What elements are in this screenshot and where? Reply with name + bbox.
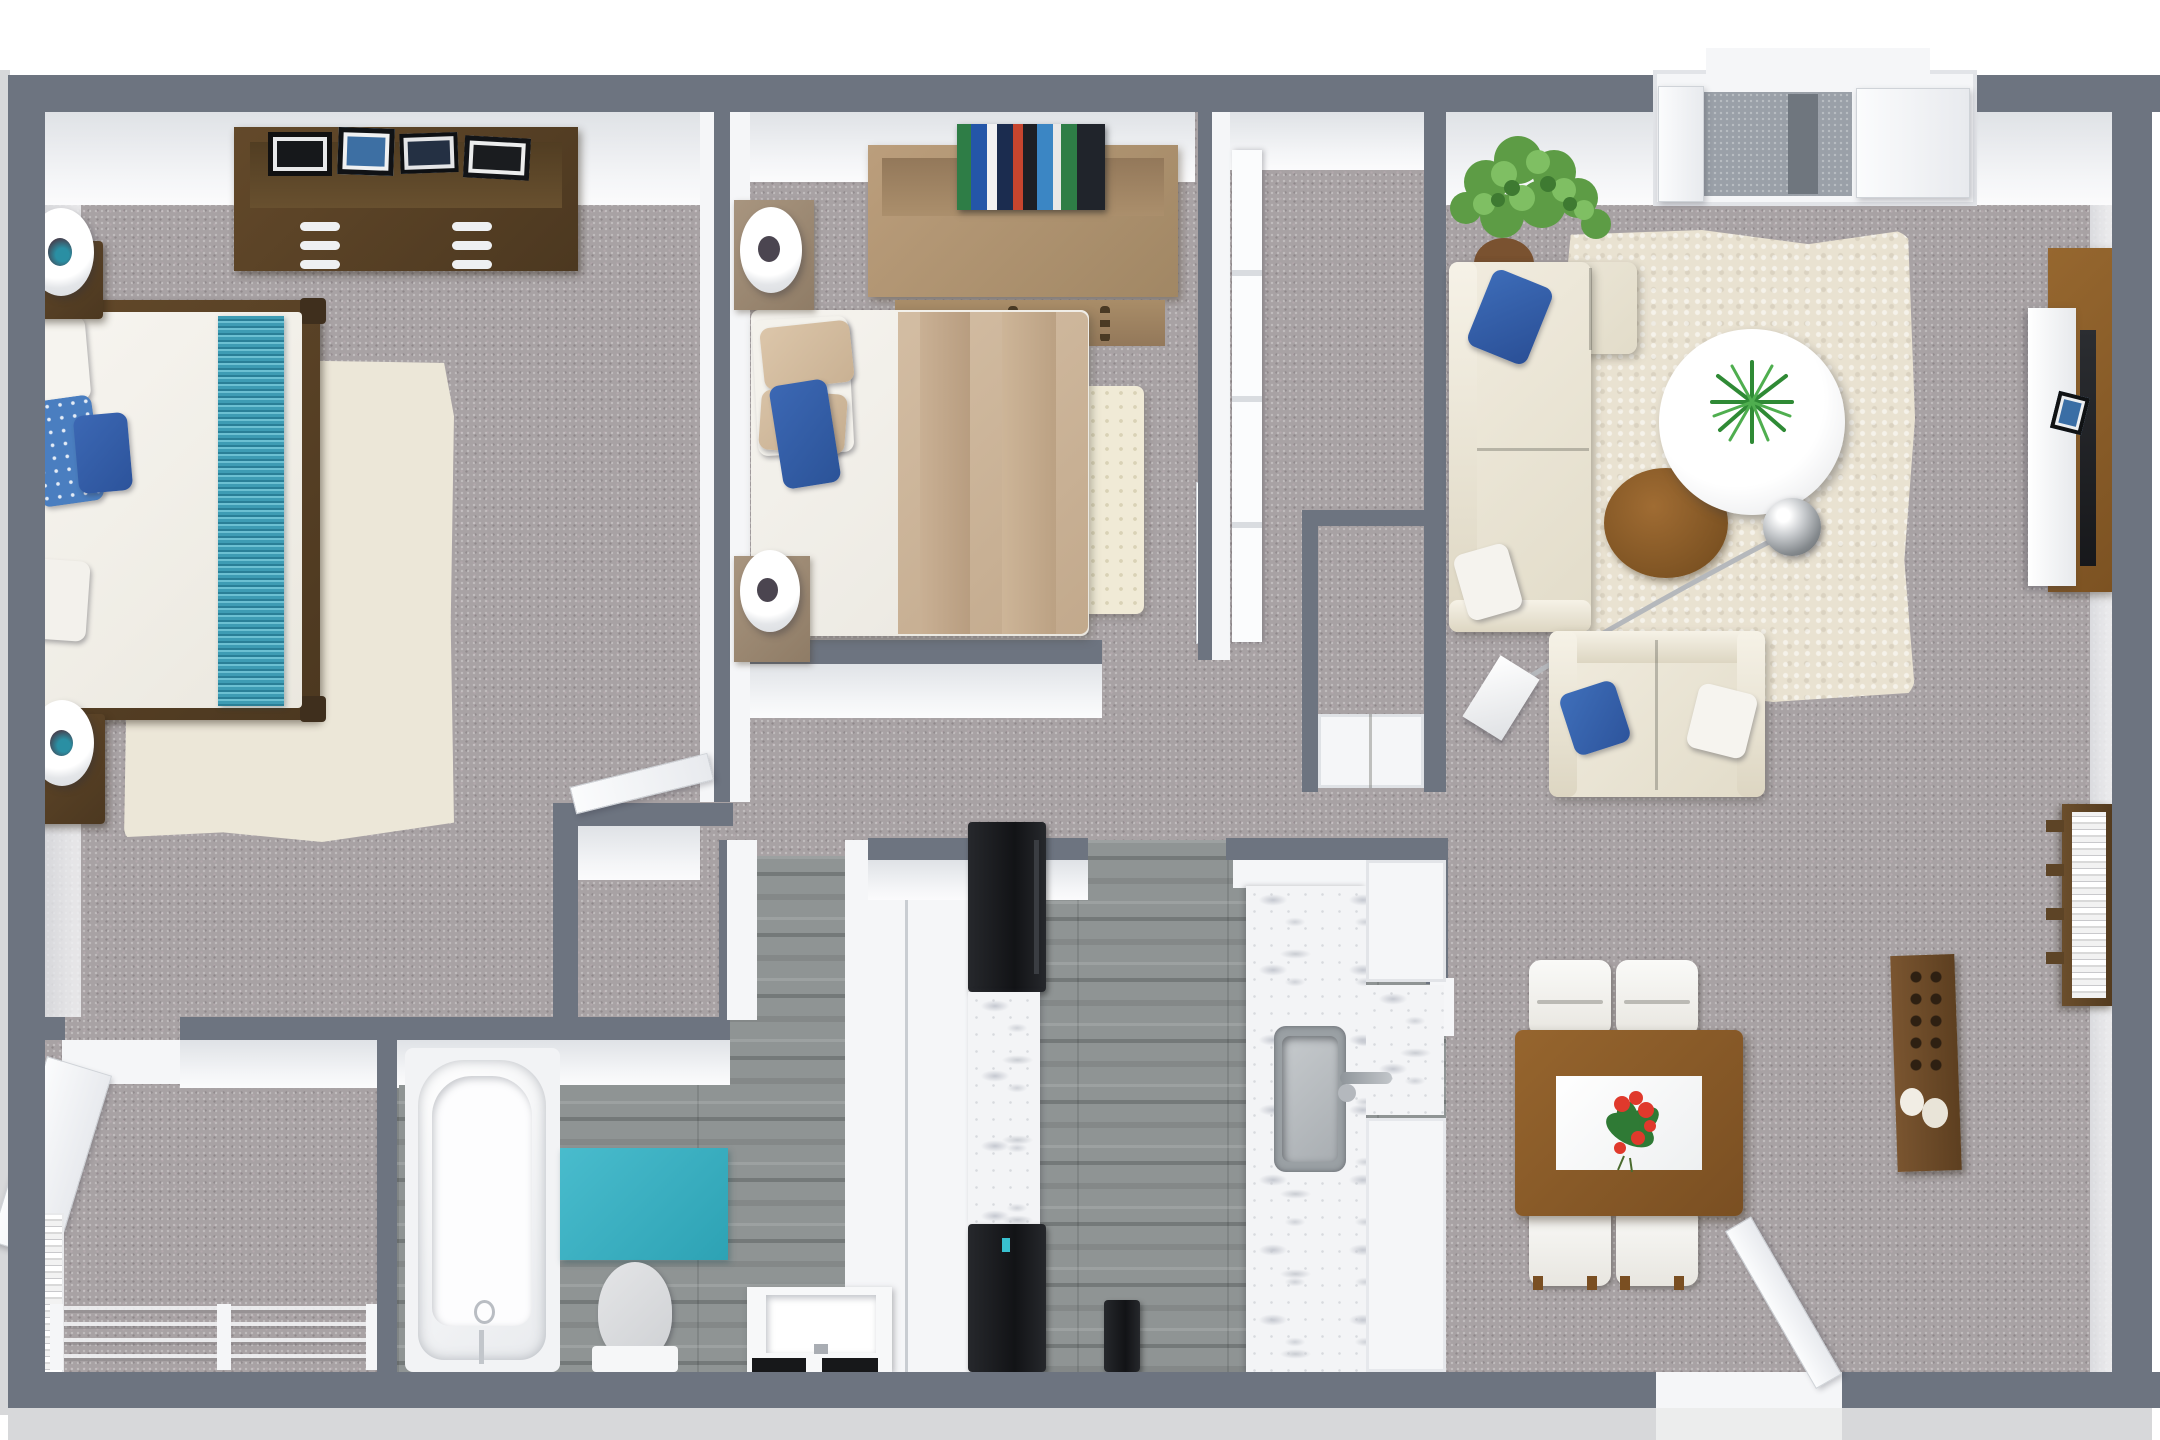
bedroom2-east-wall-face [1212,112,1230,660]
floor-plan [0,0,2160,1440]
back-door-stoop [1656,1408,1842,1440]
kitchen-faucet-base [1338,1084,1356,1102]
chair-tr-seam [1624,1000,1690,1004]
hall-closet-door-seam [1369,714,1372,788]
entry-doormat-stripe [1788,94,1818,194]
kitchen-sink-basin [1282,1036,1338,1162]
closetroom-wall-stub [45,1017,65,1040]
dining-chair-top-right [1616,960,1698,1036]
kitchen-counter-left [968,992,1040,1224]
closetroom-wall-face [180,1040,399,1088]
alcove-wall-left [553,803,578,1017]
dresser-drawer-pull-1 [300,222,340,231]
picture-frame-1 [268,132,332,176]
master-blue-pillow [73,412,134,494]
kitchen-upper-counter [1233,860,1368,888]
outer-wall-top-left [8,75,1653,112]
tv-screen [2080,330,2096,566]
bedroom2-south-wall-face [750,662,1102,718]
master-bed-teal-runner [218,316,284,706]
bath-mat [560,1148,728,1260]
bathtub-basin [432,1076,532,1326]
toilet-tank [592,1346,678,1372]
refrigerator-handle [1034,840,1039,974]
closet-rod-bay-2 [231,1306,366,1368]
sectional-seat-seam-2 [1589,268,1592,350]
ladder-bookshelf-books [2072,812,2106,998]
picture-frame-2 [337,127,395,176]
chair-tl-seam [1537,1000,1603,1004]
closetroom-wall-top [180,1017,399,1040]
outer-wall-right [2112,75,2152,1408]
bathtub-faucet [479,1330,484,1364]
dining-centerpiece-flowers [1580,1072,1690,1182]
entry-door-panel-right [1856,88,1970,198]
vanity-base-left [752,1358,806,1372]
closet-post-1 [50,1304,63,1370]
tv-console [2028,308,2076,586]
closet-post-2 [217,1304,231,1370]
closet2-sliding-door [1232,150,1262,642]
picture-frame-3 [399,132,458,174]
bedroom2-lamp-top-center [758,236,780,262]
bathroom-kitchen-wall-seam [905,840,908,1372]
bedroom2-books [957,124,1105,210]
hall-closet-west-wall [1302,510,1318,792]
bathtub-drain [474,1300,495,1324]
loveseat-seam [1655,640,1658,790]
master-bed2-wall-core [714,112,730,802]
picture-frame-4 [463,135,531,180]
chair-bl-legs [1533,1276,1607,1290]
dining-chair-top-left [1529,960,1611,1036]
dishwasher [1366,860,1446,982]
master-lamp-bottom-center [50,730,73,756]
sectional-seat-seam-1 [1477,448,1589,451]
bathroom-west-wall [377,1017,397,1372]
dresser-drawer-pull-4 [452,222,492,231]
bedroom2-east-wall [1198,112,1212,660]
hall-closet-top-wall [1302,510,1424,526]
chair-br-legs [1620,1276,1694,1290]
entry-sill-outside [1706,48,1930,74]
bathroom-north-wall [397,1017,730,1040]
bedroom2-lamp-bottom-center [757,578,778,602]
master-bed-post-top [300,298,326,324]
bedroom2-tan-pillow-1 [759,319,855,390]
dining-chair-bottom-left [1529,1206,1611,1286]
chrome-sphere-shade [1763,498,1821,556]
kitchen-black-bin [1104,1300,1140,1372]
ladder-bookshelf-steps [2046,820,2064,990]
stove-display [1002,1238,1010,1252]
dresser-drawer-pull-6 [452,260,492,269]
closet2-east-wall [1424,112,1446,792]
kitchen-dining-wall-top [1226,838,1448,860]
display-cabinet-decor-2 [1922,1098,1948,1128]
master-bed-post-bottom [300,696,326,722]
entry-door-panel-left [1658,86,1704,202]
display-cabinet-decor-1 [1900,1088,1924,1116]
kitchen-counter-return [1366,985,1444,1115]
dining-chair-bottom-right [1616,1206,1698,1286]
alcove-wall-face [578,826,700,880]
bedroom2-blanket-fold-1 [920,312,970,634]
dresser-drawer-pull-5 [452,241,492,250]
display-cabinet-knobs [1906,966,1946,1076]
bathroom-entry-west-wall [719,840,757,1020]
bedroom2-drawer-knobs-right [1100,306,1110,342]
vanity-base-right [822,1358,878,1372]
vanity-faucet [814,1344,828,1354]
closet-rod-bay-1 [64,1306,217,1368]
kitchen-cabinet [1366,1118,1446,1372]
dresser-drawer-pull-2 [300,241,340,250]
coffee-table-plant [1706,356,1798,448]
master-lamp-top-center [48,238,72,266]
kitchen-faucet [1340,1072,1392,1084]
entry-doormat [1700,92,1852,196]
outer-wall-bottom-right [1842,1372,2160,1408]
bedroom2-blanket-fold-2 [1002,312,1056,634]
outer-wall-bottom-left [8,1372,1656,1408]
dresser-drawer-pull-3 [300,260,340,269]
outer-wall-left [8,75,45,1408]
